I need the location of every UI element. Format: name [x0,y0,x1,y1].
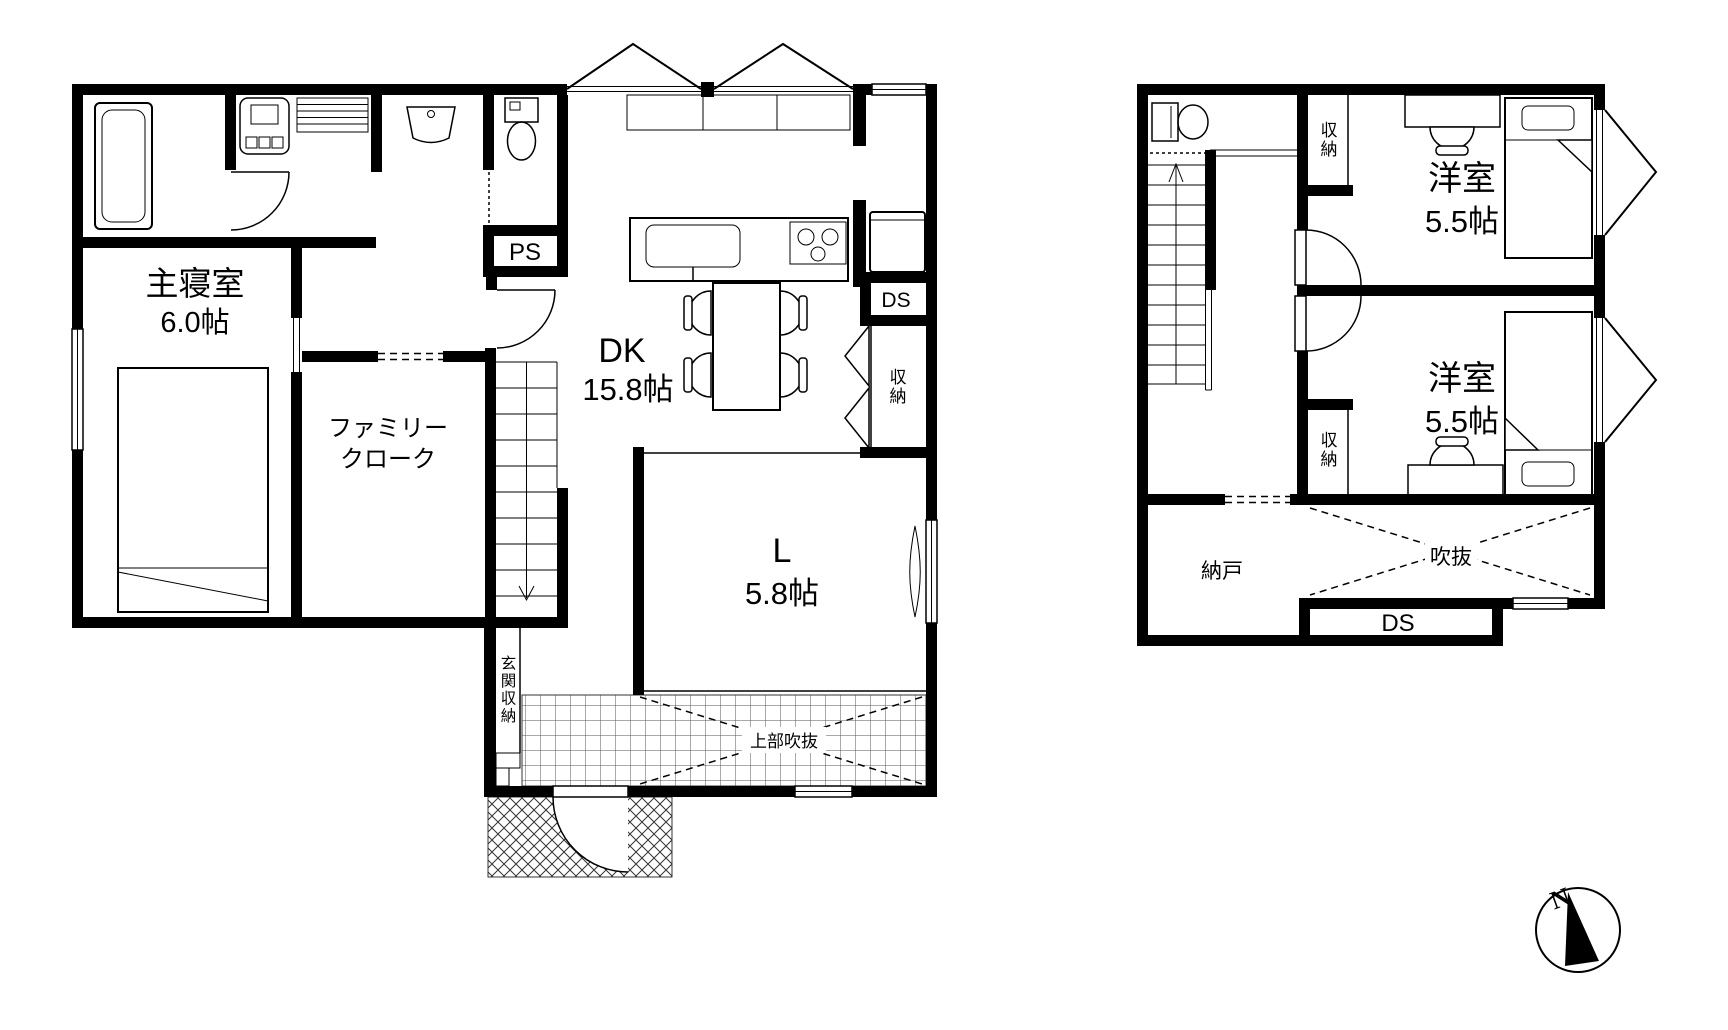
dining-table-icon [684,283,807,410]
void-label: 吹抜 [1430,546,1472,569]
refrigerator-icon [870,212,925,272]
closet-label: 収納 [887,368,907,406]
duct-space2-label: DS [1381,610,1414,637]
bifold-door-icon [845,388,869,448]
duct-space-label: DS [881,289,910,312]
master-bedroom-size: 6.0帖 [160,306,229,339]
vanity-sink-icon [407,107,455,143]
desk-icon [1405,95,1500,155]
storeroom-label: 納戸 [1201,560,1243,583]
western-room1-size: 5.5帖 [1425,204,1499,239]
dk-label: DK [598,332,646,370]
family-closet-label-2: クローク [340,446,436,473]
louver-shelf-icon [297,98,368,132]
bed-icon [118,368,268,612]
porch-hatch [488,797,672,877]
stairs-down-icon [496,362,557,600]
desk-icon [1408,437,1503,497]
bifold-door-icon [845,326,869,386]
closet2-label: 収納 [1318,431,1338,469]
floor2-plan: 洋室 5.5帖 洋室 5.5帖 収納 収納 納戸 吹抜 DS [1137,84,1656,646]
floor-plan-drawing: 主寝室 6.0帖 ファミリー クローク DK 15.8帖 L 5.8帖 PS D… [0,0,1728,1030]
floor1-plan: 主寝室 6.0帖 ファミリー クローク DK 15.8帖 L 5.8帖 PS D… [72,44,937,877]
pipe-space-label: PS [509,239,541,266]
casement-window-icon [1513,110,1656,609]
stove-icon [790,222,846,264]
storeroom-opening [1225,494,1290,505]
western-room2-label: 洋室 [1428,360,1496,398]
western-room1-label: 洋室 [1428,160,1496,198]
entrance-door-icon [553,786,628,797]
dk-size: 15.8帖 [582,372,673,407]
entrance-tile-floor [522,695,926,786]
kitchen-counter-icon [630,218,848,281]
living-label: L [773,532,792,570]
stairs-up-icon [1148,164,1212,390]
bed-icon [1505,312,1592,497]
toilet-icon [505,98,538,160]
living-size: 5.8帖 [745,576,819,611]
compass-north-icon: N [1536,882,1620,972]
family-closet-label-1: ファミリー [328,415,448,442]
upper-void-label: 上部吹抜 [750,732,818,751]
entrance-storage-label: 玄関収納 [499,655,517,725]
floor-plan-page: 主寝室 6.0帖 ファミリー クローク DK 15.8帖 L 5.8帖 PS D… [0,0,1728,1030]
master-bedroom-label: 主寝室 [146,265,245,302]
bathtub-icon [95,103,152,229]
western-room2-size: 5.5帖 [1425,404,1499,439]
washing-machine-icon [240,98,289,154]
closet1-label: 収納 [1318,121,1338,159]
toilet-icon [1150,103,1297,156]
labels-floor2: 洋室 5.5帖 洋室 5.5帖 収納 収納 納戸 吹抜 DS [1201,121,1499,637]
bed-icon [1505,98,1592,258]
